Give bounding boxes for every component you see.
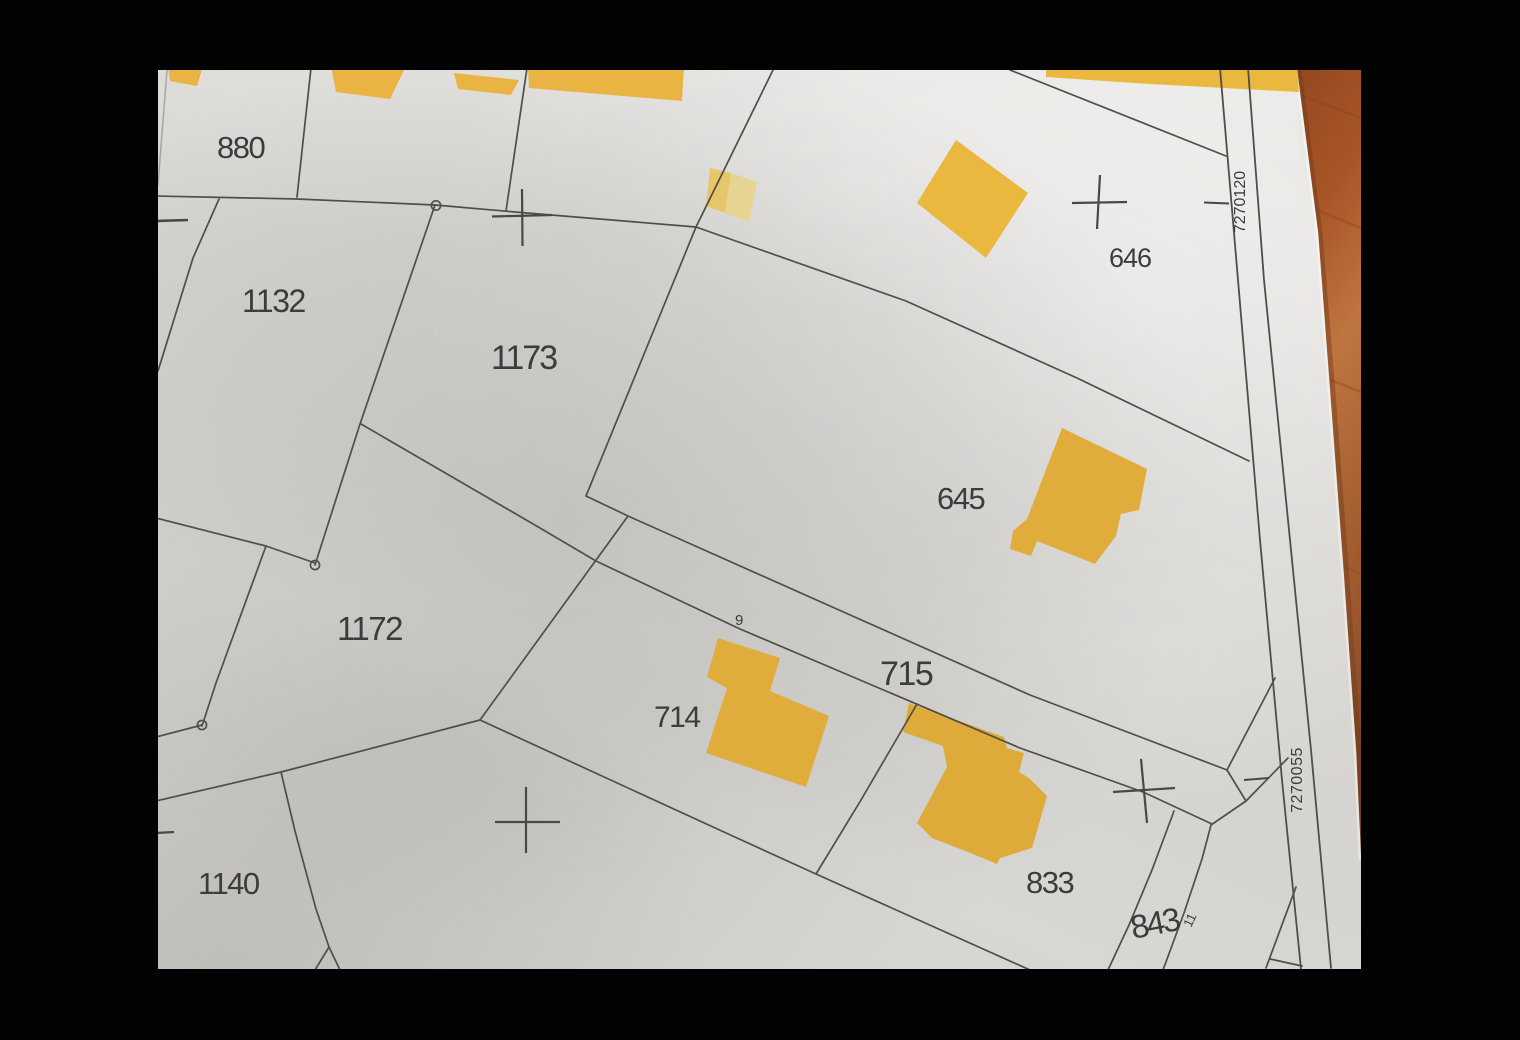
svg-text:1132: 1132 (242, 283, 306, 319)
svg-text:715: 715 (880, 655, 933, 693)
svg-text:7270055: 7270055 (1289, 747, 1306, 813)
svg-text:1173: 1173 (491, 339, 557, 377)
svg-text:880: 880 (217, 130, 265, 165)
svg-text:7270120: 7270120 (1232, 171, 1249, 233)
svg-text:646: 646 (1109, 243, 1151, 273)
svg-text:833: 833 (1026, 865, 1073, 900)
svg-text:645: 645 (937, 481, 984, 516)
svg-text:714: 714 (654, 701, 700, 734)
svg-text:1172: 1172 (337, 610, 402, 647)
svg-text:9: 9 (735, 612, 743, 629)
svg-text:1140: 1140 (198, 866, 260, 901)
